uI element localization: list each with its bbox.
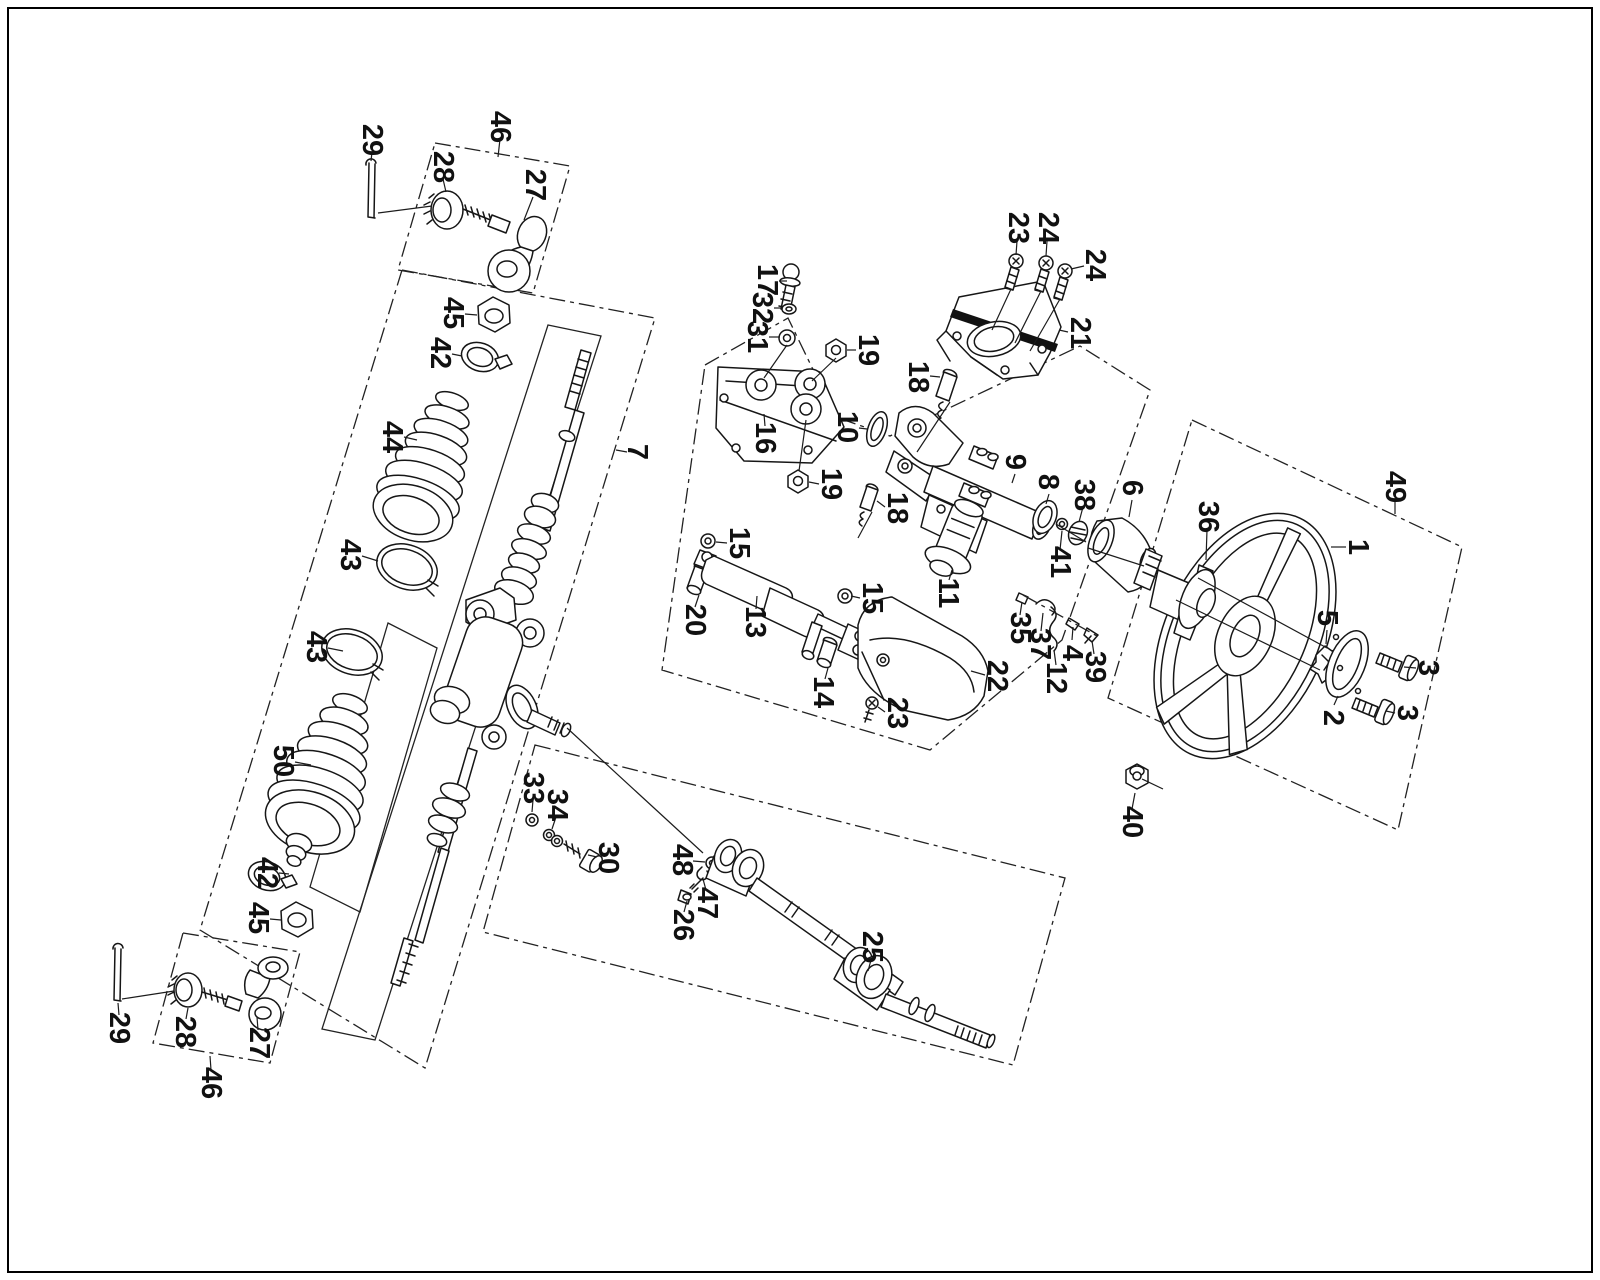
o-ring-15-b (838, 589, 852, 603)
part-label-45: 45 (242, 902, 274, 934)
steering-boot-44 (365, 388, 472, 552)
nut-40 (1126, 764, 1148, 789)
label-leader-9 (1012, 474, 1015, 483)
part-label-38: 38 (1068, 479, 1100, 511)
part-label-49: 49 (1379, 471, 1411, 503)
part-label-32: 32 (746, 292, 778, 324)
leader-line (567, 728, 703, 853)
part-label-26: 26 (667, 909, 699, 941)
part-label-15: 15 (856, 582, 888, 614)
clamp-43-upper (371, 536, 444, 598)
part-label-23: 23 (1002, 212, 1034, 244)
part-label-5: 5 (1311, 610, 1343, 626)
screw-24-b (1054, 264, 1072, 300)
part-label-21: 21 (1064, 317, 1096, 349)
part-label-37: 37 (1024, 628, 1056, 660)
spring-38 (1065, 519, 1091, 548)
tie-rod-end-27-top (463, 205, 552, 292)
part-label-40: 40 (1116, 806, 1148, 838)
leader-line (378, 206, 432, 213)
nut-45-bottom (281, 902, 313, 937)
jam-nut-28-top (424, 191, 463, 229)
label-leader-6 (1129, 500, 1132, 517)
washers-34 (544, 830, 563, 847)
part-label-29: 29 (103, 1012, 135, 1044)
part-label-29: 29 (356, 124, 388, 156)
pin-14 (816, 636, 838, 670)
part-label-42: 42 (251, 857, 283, 889)
clamp-42-top (457, 338, 512, 377)
part-label-36: 36 (1192, 501, 1224, 533)
part-label-20: 20 (679, 604, 711, 636)
part-label-11: 11 (932, 578, 964, 609)
part-label-39: 39 (1079, 651, 1111, 683)
part-label-50: 50 (267, 745, 299, 777)
part-label-28: 28 (169, 1016, 201, 1048)
nut-45-top (478, 297, 510, 332)
part-label-2: 2 (1317, 710, 1349, 726)
part-label-23: 23 (881, 697, 913, 729)
part-label-42: 42 (424, 337, 456, 369)
part-label-31: 31 (741, 321, 773, 353)
intermediate-shaft-25 (706, 835, 996, 1048)
washer-31 (779, 330, 795, 346)
part-label-22: 22 (981, 660, 1013, 692)
screw-24-a (1035, 256, 1053, 292)
spring-washer-32 (782, 304, 796, 314)
bolt-18-b (859, 483, 879, 526)
part-label-44: 44 (376, 421, 408, 453)
steering-boot-50 (257, 690, 372, 868)
part-label-34: 34 (541, 789, 573, 821)
exploded-parts-diagram: 2946282745424443435042452928274671732311… (0, 0, 1600, 1280)
part-label-8: 8 (1032, 474, 1064, 490)
damper-13 (694, 550, 874, 662)
part-label-45: 45 (437, 297, 469, 329)
part-label-24: 24 (1032, 212, 1064, 244)
part-label-9: 9 (999, 454, 1031, 470)
part-label-19: 19 (815, 468, 847, 500)
screw-23-b (864, 697, 878, 722)
diagram-page: 2946282745424443435042452928274671732311… (0, 0, 1600, 1280)
part-label-43: 43 (300, 631, 332, 663)
ring-33 (526, 814, 538, 826)
box-rack-assembly (200, 270, 655, 1068)
part-label-12: 12 (1040, 662, 1072, 694)
nut-19-b (788, 470, 808, 493)
part-label-15: 15 (723, 527, 755, 559)
jam-nut-28-bottom (168, 973, 202, 1007)
part-label-6: 6 (1116, 480, 1148, 496)
part-label-25: 25 (856, 931, 888, 963)
cotter-pin-29-bottom (113, 943, 123, 1001)
part-label-28: 28 (427, 151, 459, 183)
part-label-13: 13 (739, 606, 771, 638)
o-ring-15-a (701, 534, 715, 548)
tie-rod-end-27-bottom (202, 957, 288, 1030)
part-label-48: 48 (666, 844, 698, 876)
part-label-19: 19 (852, 334, 884, 366)
part-label-27: 27 (243, 1027, 275, 1059)
part-label-41: 41 (1044, 546, 1076, 578)
part-label-7: 7 (621, 444, 653, 460)
part-label-1: 1 (1342, 539, 1374, 555)
part-label-30: 30 (592, 842, 624, 874)
part-label-3: 3 (1391, 705, 1423, 721)
part-label-46: 46 (484, 111, 516, 143)
part-label-27: 27 (519, 169, 551, 201)
part-label-16: 16 (749, 422, 781, 454)
part-label-10: 10 (831, 411, 863, 443)
part-label-3: 3 (1412, 660, 1444, 676)
part-label-18: 18 (902, 361, 934, 393)
part-label-43: 43 (334, 539, 366, 571)
part-label-18: 18 (881, 492, 913, 524)
part-label-46: 46 (195, 1067, 227, 1099)
cotter-pin-29-top (366, 159, 376, 218)
part-label-24: 24 (1079, 249, 1111, 281)
part-label-14: 14 (807, 676, 839, 708)
